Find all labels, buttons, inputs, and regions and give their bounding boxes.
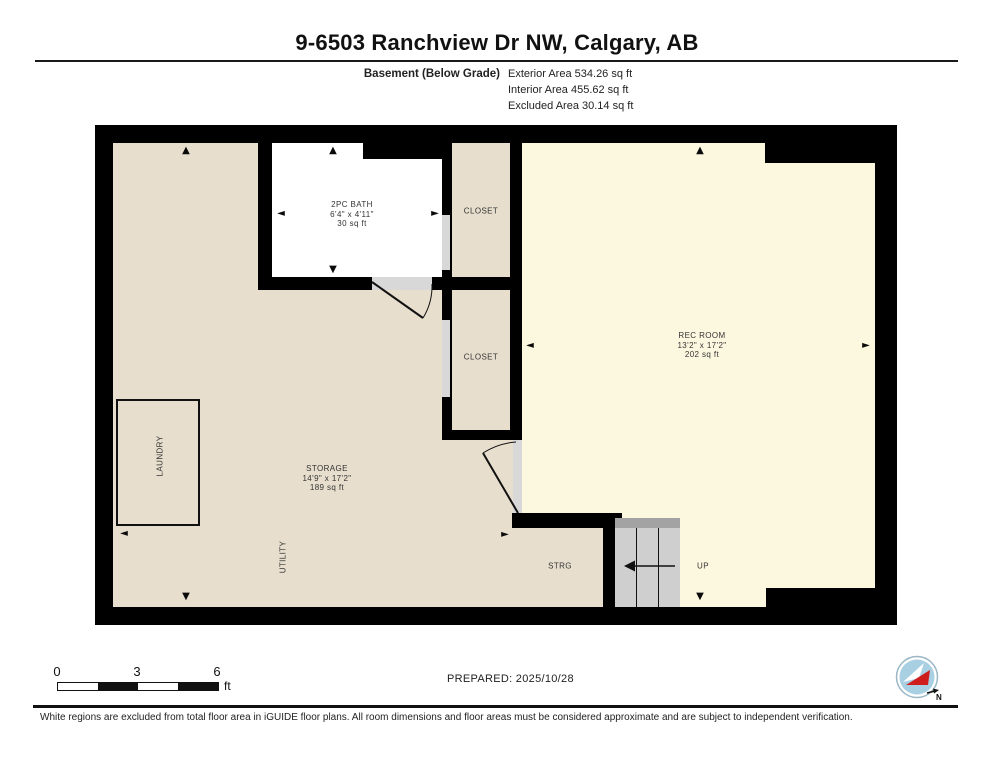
dim-arrow-right-icon: ► bbox=[862, 341, 870, 351]
dim-arrow-down-icon: ▼ bbox=[329, 265, 337, 275]
scale-unit-label: ft bbox=[224, 679, 231, 693]
storage-door-leaf bbox=[483, 453, 518, 513]
dim-arrow-down-icon: ▼ bbox=[182, 592, 190, 602]
dim-arrow-right-icon: ► bbox=[501, 530, 509, 540]
floorplan-canvas: 2PC BATH 6'4" x 4'11" 30 sq ft CLOSET CL… bbox=[95, 125, 897, 625]
label-closet-mid: CLOSET bbox=[464, 352, 498, 362]
disclaimer-text: White regions are excluded from total fl… bbox=[40, 712, 853, 723]
dim-arrow-down-icon: ▼ bbox=[696, 592, 704, 602]
label-closet-top: CLOSET bbox=[464, 206, 498, 216]
dim-arrow-left-icon: ◄ bbox=[120, 529, 128, 539]
dim-arrow-up-icon: ▲ bbox=[329, 146, 337, 156]
footer-divider bbox=[33, 705, 958, 708]
dim-arrow-left-icon: ◄ bbox=[526, 341, 534, 351]
bath-door-arc bbox=[423, 284, 432, 318]
label-laundry: LAUNDRY bbox=[155, 436, 165, 477]
scale-tick-0: 0 bbox=[53, 664, 60, 679]
excluded-area-line: Excluded Area 30.14 sq ft bbox=[508, 100, 633, 116]
header-divider bbox=[35, 60, 958, 62]
prepared-date: PREPARED: 2025/10/28 bbox=[447, 673, 574, 685]
dim-arrow-right-icon: ► bbox=[431, 209, 439, 219]
north-letter: N bbox=[936, 693, 942, 702]
label-strg: STRG bbox=[548, 561, 572, 571]
floorplan-page: 9-6503 Ranchview Dr NW, Calgary, AB Base… bbox=[0, 0, 994, 768]
scale-tick-3: 3 bbox=[133, 664, 140, 679]
label-storage: STORAGE 14'9" x 17'2" 189 sq ft bbox=[302, 464, 351, 493]
scale-bar bbox=[57, 682, 219, 691]
floor-name-label: Basement (Below Grade) bbox=[270, 68, 500, 80]
dim-arrow-up-icon: ▲ bbox=[182, 146, 190, 156]
label-utility: UTILITY bbox=[278, 541, 288, 574]
exterior-area-line: Exterior Area 534.26 sq ft bbox=[508, 68, 633, 84]
plan-annotations-svg bbox=[95, 125, 897, 625]
north-compass-icon: N bbox=[894, 655, 948, 703]
storage-door-arc bbox=[483, 442, 516, 453]
page-title: 9-6503 Ranchview Dr NW, Calgary, AB bbox=[0, 30, 994, 56]
label-stairs-up: UP bbox=[697, 561, 709, 571]
label-rec-room: REC ROOM 13'2" x 17'2" 202 sq ft bbox=[677, 331, 726, 360]
dim-arrow-left-icon: ◄ bbox=[277, 209, 285, 219]
interior-area-line: Interior Area 455.62 sq ft bbox=[508, 84, 633, 100]
scale-tick-6: 6 bbox=[213, 664, 220, 679]
label-bath: 2PC BATH 6'4" x 4'11" 30 sq ft bbox=[330, 200, 374, 229]
area-summary: Exterior Area 534.26 sq ft Interior Area… bbox=[508, 68, 633, 116]
bath-door-leaf bbox=[372, 282, 423, 318]
dim-arrow-up-icon: ▲ bbox=[696, 146, 704, 156]
stairs-up-arrow-head bbox=[624, 561, 635, 572]
